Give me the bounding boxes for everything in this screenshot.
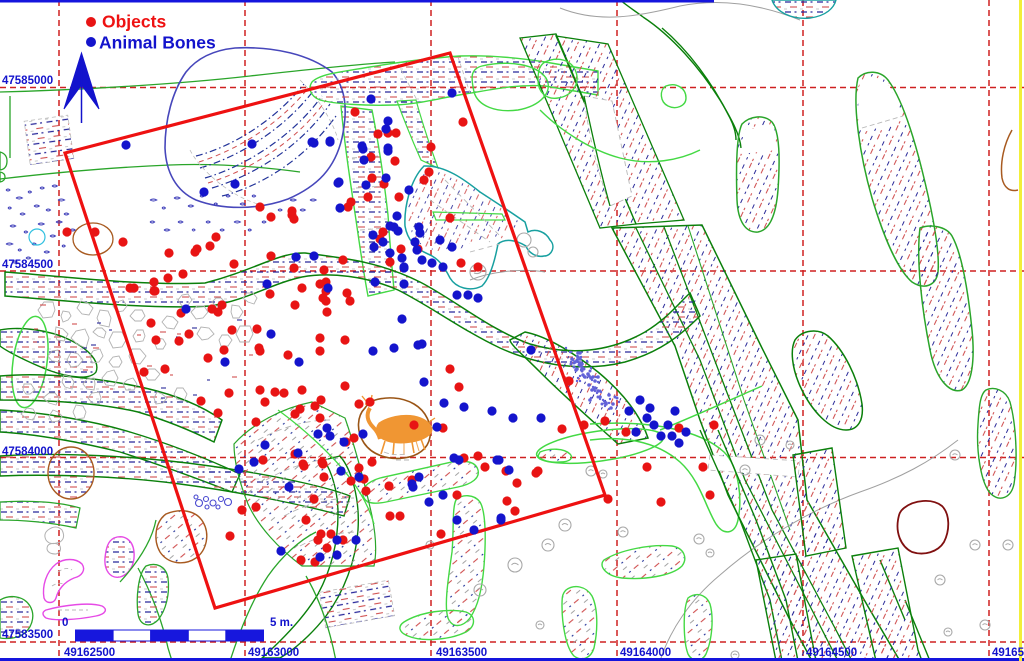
svg-text:4916500: 4916500 xyxy=(992,647,1024,659)
svg-text:47583500: 47583500 xyxy=(2,629,53,641)
svg-text:47584000: 47584000 xyxy=(2,446,53,458)
svg-text:47585000: 47585000 xyxy=(2,75,53,87)
svg-text:5 m.: 5 m. xyxy=(270,617,293,629)
svg-text:Objects: Objects xyxy=(102,12,166,32)
svg-text:49164000: 49164000 xyxy=(620,647,671,659)
svg-text:0: 0 xyxy=(62,617,68,629)
svg-text:49164500: 49164500 xyxy=(806,647,857,659)
svg-text:47584500: 47584500 xyxy=(2,259,53,271)
svg-text:Animal Bones: Animal Bones xyxy=(99,33,216,53)
svg-text:49162500: 49162500 xyxy=(64,647,115,659)
svg-text:49163000: 49163000 xyxy=(248,647,299,659)
svg-text:49163500: 49163500 xyxy=(436,647,487,659)
